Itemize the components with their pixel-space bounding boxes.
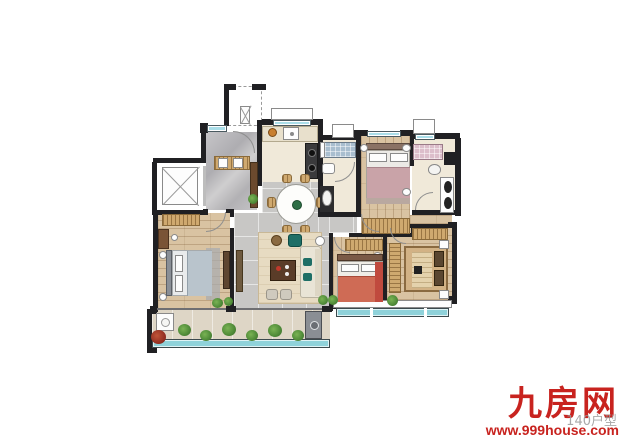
wardrobe (162, 214, 200, 226)
plant (387, 295, 398, 306)
bed-tray (414, 266, 422, 274)
wall-segment (318, 212, 361, 217)
dining-chair (300, 174, 310, 183)
pillow (390, 153, 408, 162)
wall-segment (448, 222, 457, 227)
vanity-counter (440, 177, 454, 213)
pillow (175, 255, 183, 272)
ac-platform (271, 108, 313, 120)
dining-table (276, 184, 316, 224)
plant (222, 323, 236, 336)
armchair (288, 234, 302, 247)
bed-runner (366, 198, 410, 204)
pillow (175, 275, 183, 292)
washing-machine (305, 311, 322, 339)
dining-chair (267, 197, 276, 208)
plant (200, 330, 212, 341)
wall-segment (452, 222, 457, 304)
nightstand (439, 290, 449, 299)
tv-cabinet (236, 250, 243, 292)
plant (268, 324, 282, 337)
bathroom-sink (322, 163, 335, 174)
watermark: 140户型 九房网 www.999house.com (486, 387, 619, 437)
plant (318, 295, 328, 305)
side-table (271, 235, 282, 246)
wall-segment (147, 348, 157, 353)
toilet (428, 164, 441, 175)
red-plant (151, 330, 166, 344)
elevator (157, 163, 203, 210)
watermark-url: www.999house.com (486, 423, 619, 437)
bath-cabinet (320, 142, 325, 158)
toilet (322, 190, 332, 206)
pillow (369, 153, 387, 162)
plant (328, 295, 338, 305)
pillow (341, 264, 359, 272)
shower-area (324, 142, 356, 158)
balcony-glazing (152, 339, 330, 348)
master-shower (413, 144, 443, 160)
tv-cabinet (223, 251, 230, 289)
ac-platform (332, 124, 354, 138)
nightstand (402, 144, 411, 152)
tatami-bed (404, 246, 448, 292)
plant (292, 330, 304, 341)
bench-pillow (218, 158, 228, 168)
ottoman (280, 289, 292, 300)
balcony-door-track (156, 308, 330, 310)
stool (402, 188, 411, 196)
window (207, 125, 227, 132)
wall-segment (224, 88, 229, 126)
dresser (158, 229, 169, 249)
wall-segment (153, 213, 158, 312)
elevator-door (203, 166, 206, 206)
bed-throw (375, 262, 383, 302)
wall-segment (201, 132, 206, 160)
dining-chair (282, 174, 292, 183)
floor-plan-image: 140户型 九房网 www.999house.com (0, 0, 625, 441)
bench-pillow (233, 158, 243, 168)
ac-platform (413, 119, 435, 134)
wall-segment (252, 84, 266, 90)
niche-window-symbol (240, 106, 250, 124)
bookshelf (389, 243, 401, 293)
wall-segment (444, 152, 459, 165)
blanket (187, 251, 212, 296)
stool (171, 234, 178, 241)
bedroom2-floor-strip (410, 215, 452, 224)
sofa-cushion (303, 258, 312, 266)
window-mullion (370, 308, 373, 317)
nightstand (360, 144, 368, 152)
bed (172, 250, 212, 296)
wall-segment (226, 209, 234, 213)
wall-segment (455, 138, 461, 216)
balcony-washbasin (156, 313, 174, 331)
wall-segment (383, 228, 387, 303)
wardrobe (345, 239, 383, 251)
bed-headboard (337, 254, 383, 261)
ottoman (266, 289, 278, 300)
plant (212, 298, 223, 308)
plant (246, 330, 258, 341)
bed (337, 261, 383, 302)
sofa (300, 246, 321, 298)
coffee-table (270, 260, 296, 281)
sofa-cushion (303, 273, 312, 281)
cooking-pot (268, 128, 277, 137)
wall-segment (354, 130, 368, 136)
floor-lamp (315, 236, 325, 246)
wardrobe (412, 228, 448, 240)
bay-window-glazing (336, 308, 449, 317)
kitchen-sink (283, 127, 299, 140)
plant (224, 297, 233, 306)
wall-segment (226, 306, 236, 312)
pillow (434, 270, 444, 286)
window-mullion (424, 308, 427, 317)
plant (178, 324, 191, 336)
plant (248, 194, 258, 204)
window (415, 134, 435, 140)
window (367, 131, 401, 137)
nightstand (439, 240, 449, 249)
pillow (434, 251, 444, 267)
